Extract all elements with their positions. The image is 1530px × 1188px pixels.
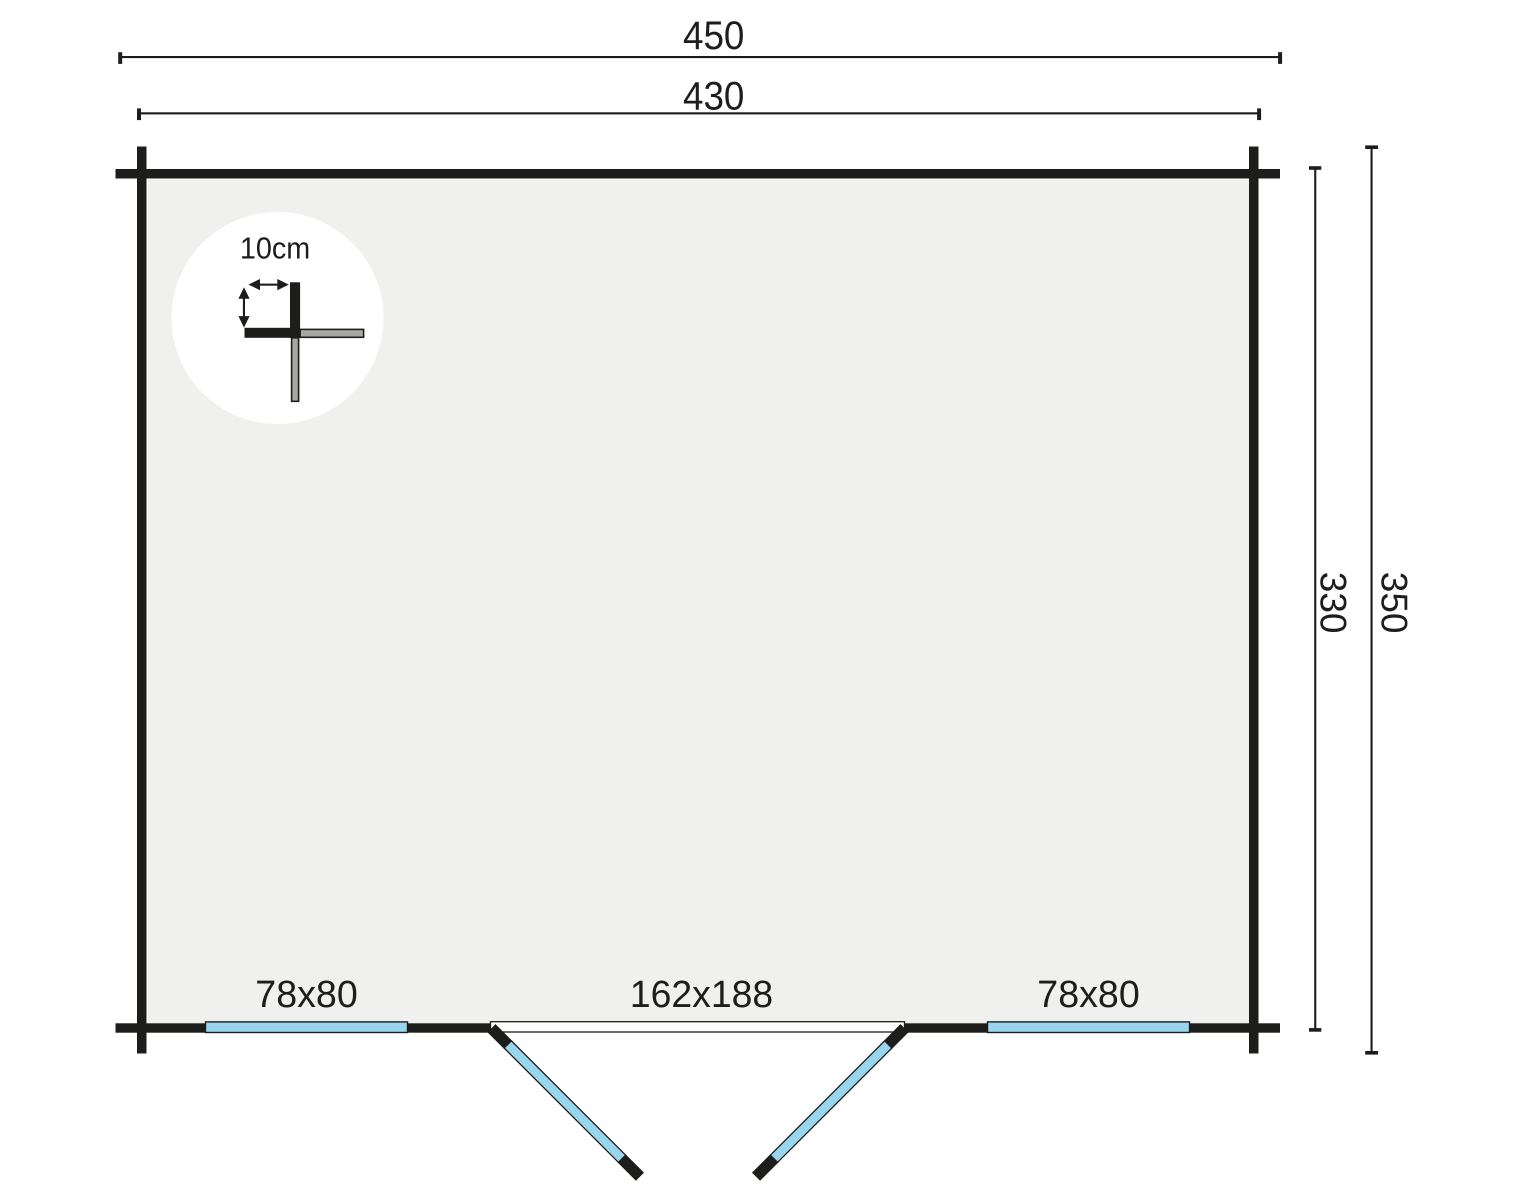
svg-text:330: 330 — [1313, 572, 1354, 634]
svg-text:350: 350 — [1374, 572, 1415, 634]
svg-text:10cm: 10cm — [240, 232, 310, 266]
svg-text:78x80: 78x80 — [255, 974, 357, 1016]
svg-text:78x80: 78x80 — [1037, 974, 1139, 1016]
svg-text:430: 430 — [683, 74, 744, 119]
svg-text:450: 450 — [683, 13, 744, 58]
svg-text:162x188: 162x188 — [630, 973, 773, 1015]
